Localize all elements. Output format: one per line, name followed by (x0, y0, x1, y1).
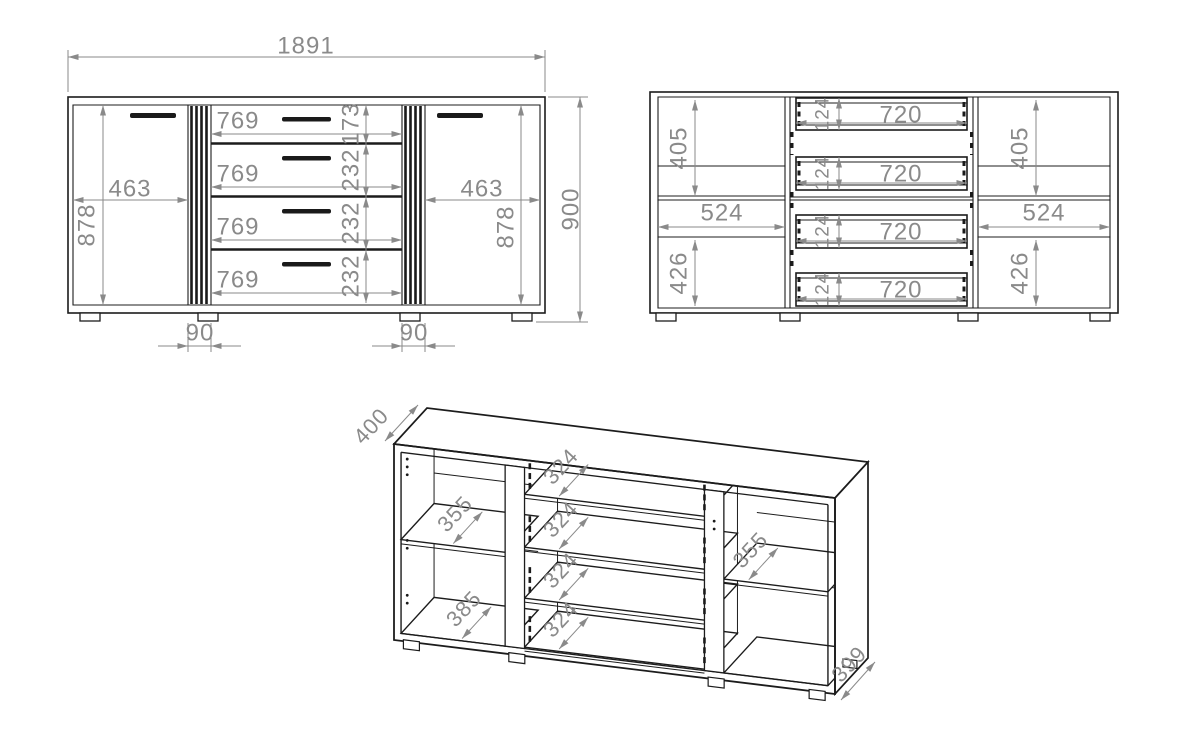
divider-2 (704, 489, 723, 672)
isometric-view: 400355385324324324324355399 (348, 403, 875, 700)
pin-hole (406, 594, 409, 597)
slide-marks (792, 132, 972, 271)
dim-door-width-left: 463 (108, 176, 151, 203)
dim-strip-width-left: 90 (186, 320, 215, 347)
dim-drawer-width-3: 769 (216, 214, 259, 241)
dim-bottom-compartment-right: 426 (1007, 251, 1034, 294)
dim-box-height-1: 124 (813, 97, 834, 132)
drawing-canvas: 1891 900 878 878 463 463 769 769 769 769… (0, 0, 1200, 750)
front-feet (80, 313, 532, 321)
dim-drawer-width-4: 769 (216, 267, 259, 294)
dim-box-width-3: 720 (879, 219, 922, 246)
pin-hole (713, 520, 716, 523)
internal-feet (656, 313, 1110, 321)
dim-door-width-right: 463 (460, 176, 503, 203)
dim-box-height-3: 124 (813, 214, 834, 249)
foot (403, 640, 419, 651)
dim-drawer-front-height-2: 232 (338, 148, 365, 191)
pin-hole (406, 602, 409, 605)
pin-hole (406, 539, 409, 542)
internal-view: 405 405 426 426 524 524 124 124 124 124 … (650, 92, 1118, 321)
foot (509, 653, 525, 664)
dim-door-height-left: 878 (74, 203, 101, 246)
dim-shelf-width-right: 524 (1022, 200, 1065, 227)
foot (708, 677, 724, 688)
dim-overall-width: 1891 (277, 33, 334, 60)
dim-overall-height: 900 (558, 187, 585, 230)
dim-top-compartment-left: 405 (666, 126, 693, 169)
dim-drawer-width-1: 769 (216, 108, 259, 135)
dim-door-height-right: 878 (493, 205, 520, 248)
pin-hole (406, 473, 409, 476)
front-view: 1891 900 878 878 463 463 769 769 769 769… (68, 33, 588, 353)
drawer-handle-2 (282, 156, 331, 161)
iso-dim-depth: 400 (348, 403, 393, 449)
technical-drawing: 1891 900 878 878 463 463 769 769 769 769… (0, 0, 1200, 750)
dim-drawer-front-height-1: 173 (338, 102, 365, 145)
dim-top-compartment-right: 405 (1007, 126, 1034, 169)
dim-strip-width-right: 90 (400, 320, 429, 347)
drawer-handle-3 (282, 209, 331, 214)
dim-shelf-width-left: 524 (700, 200, 743, 227)
dim-box-width-4: 720 (879, 277, 922, 304)
panel-inner-lines (73, 105, 540, 305)
divider-1 (505, 465, 524, 648)
dim-box-width-1: 720 (879, 102, 922, 129)
dim-drawer-front-height-3: 232 (338, 201, 365, 244)
dim-drawer-width-2: 769 (216, 161, 259, 188)
fluted-strip-right (406, 106, 421, 304)
door-handle-left (130, 113, 176, 118)
pin-hole (713, 528, 716, 531)
drawer-handle-4 (282, 262, 331, 267)
door-handle-right (437, 113, 483, 118)
fluted-strip-left (192, 106, 207, 304)
dim-bottom-compartment-left: 426 (666, 251, 693, 294)
dim-box-height-4: 124 (813, 272, 834, 307)
dim-box-width-2: 720 (879, 161, 922, 188)
pin-hole (406, 547, 409, 550)
dim-box-height-2: 124 (813, 156, 834, 191)
pin-hole (406, 458, 409, 461)
cabinet-outline (68, 97, 545, 313)
foot (809, 689, 825, 700)
dim-drawer-front-height-4: 232 (338, 254, 365, 297)
drawer-handle-1 (282, 117, 331, 122)
pin-hole (406, 466, 409, 469)
